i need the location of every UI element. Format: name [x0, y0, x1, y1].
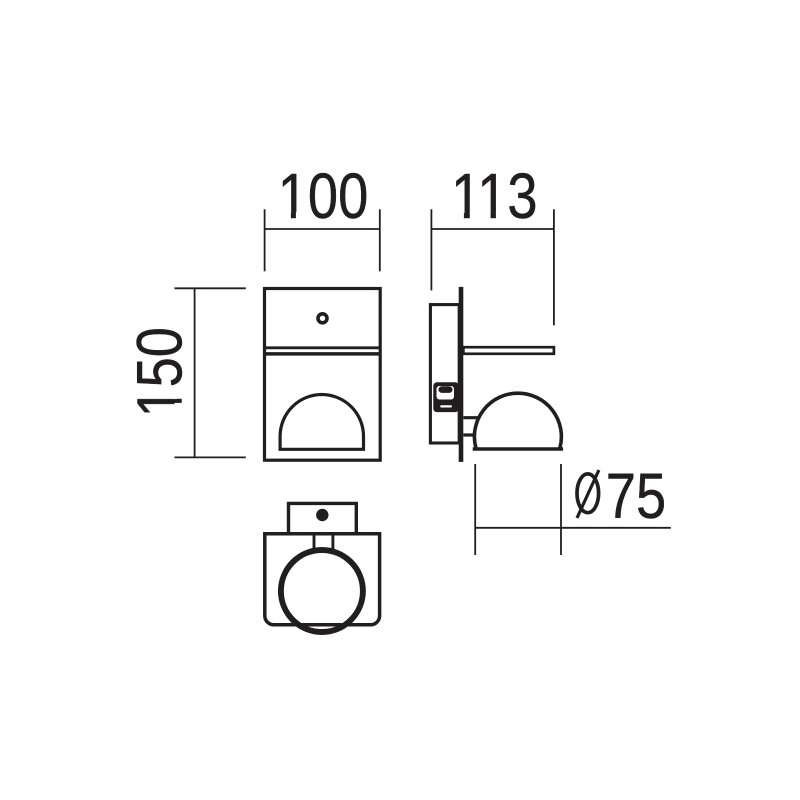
svg-text:75: 75 [606, 460, 666, 532]
svg-text:113: 113 [451, 160, 537, 232]
svg-text:150: 150 [123, 327, 195, 417]
svg-text:100: 100 [278, 160, 368, 232]
